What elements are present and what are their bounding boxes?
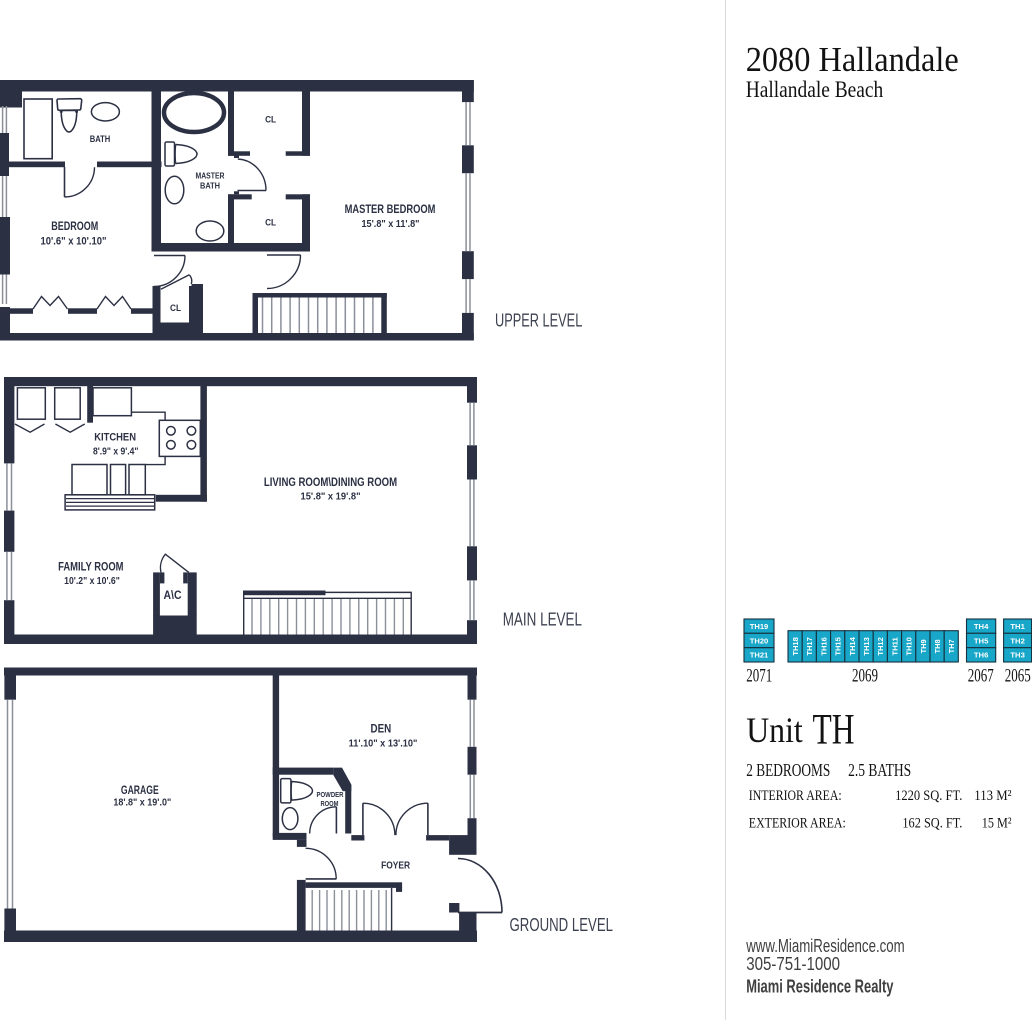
svg-text:Miami Residence Realty: Miami Residence Realty [746, 977, 893, 997]
svg-text:GROUND LEVEL: GROUND LEVEL [510, 915, 614, 935]
svg-text:A\C: A\C [164, 588, 182, 602]
svg-text:10'.2" x 10'.6": 10'.2" x 10'.6" [64, 575, 120, 587]
svg-text:MASTER BEDROOM: MASTER BEDROOM [345, 202, 436, 216]
svg-text:TH7: TH7 [947, 639, 956, 653]
svg-text:TH19: TH19 [750, 622, 769, 631]
svg-text:TH: TH [813, 706, 855, 753]
svg-text:LIVING ROOM\DINING ROOM: LIVING ROOM\DINING ROOM [264, 475, 397, 489]
svg-text:GARAGE: GARAGE [121, 785, 159, 797]
svg-text:TH8: TH8 [933, 639, 942, 653]
svg-text:MASTER: MASTER [196, 170, 225, 180]
svg-text:2071: 2071 [746, 666, 772, 687]
svg-text:TH12: TH12 [876, 637, 885, 656]
svg-text:15'.8" x 11'.8": 15'.8" x 11'.8" [362, 218, 420, 230]
svg-text:ROOM: ROOM [321, 799, 339, 808]
svg-text:TH2: TH2 [1010, 636, 1025, 645]
svg-text:TH15: TH15 [834, 637, 843, 656]
svg-text:15 M²: 15 M² [982, 816, 1012, 832]
svg-text:TH13: TH13 [862, 637, 871, 656]
svg-text:FOYER: FOYER [381, 860, 410, 872]
svg-text:BEDROOM: BEDROOM [51, 219, 98, 233]
svg-text:CL: CL [170, 303, 181, 313]
svg-text:305-751-1000: 305-751-1000 [746, 954, 840, 974]
svg-text:113 M²: 113 M² [974, 788, 1012, 804]
svg-text:TH18: TH18 [791, 637, 800, 656]
svg-text:TH3: TH3 [1010, 651, 1025, 660]
svg-text:TH20: TH20 [750, 636, 769, 645]
svg-text:TH14: TH14 [848, 636, 857, 655]
svg-text:BATH: BATH [200, 180, 220, 190]
svg-text:BATH: BATH [90, 134, 111, 145]
svg-text:TH21: TH21 [750, 651, 769, 660]
svg-text:TH16: TH16 [819, 637, 828, 656]
svg-text:Hallandale Beach: Hallandale Beach [746, 77, 884, 102]
svg-text:MAIN LEVEL: MAIN LEVEL [503, 609, 582, 629]
svg-text:EXTERIOR AREA:: EXTERIOR AREA: [749, 816, 846, 832]
svg-text:18'.8" x 19'.0": 18'.8" x 19'.0" [113, 798, 171, 809]
svg-text:UPPER LEVEL: UPPER LEVEL [495, 311, 582, 331]
svg-text:162 SQ. FT.: 162 SQ. FT. [902, 816, 962, 832]
svg-text:TH10: TH10 [905, 637, 914, 656]
svg-text:11'.10" x 13'.10": 11'.10" x 13'.10" [349, 739, 418, 750]
svg-text:TH6: TH6 [974, 651, 989, 660]
svg-text:TH17: TH17 [805, 637, 814, 656]
svg-text:2080 Hallandale: 2080 Hallandale [746, 40, 959, 79]
svg-text:TH9: TH9 [919, 639, 928, 653]
svg-text:2.5 BATHS: 2.5 BATHS [848, 760, 911, 780]
svg-text:DEN: DEN [371, 723, 392, 735]
svg-text:INTERIOR AREA:: INTERIOR AREA: [749, 788, 842, 804]
svg-text:CL: CL [265, 115, 276, 126]
svg-text:CL: CL [265, 218, 276, 229]
svg-text:TH5: TH5 [974, 636, 989, 645]
svg-text:2069: 2069 [852, 666, 878, 687]
svg-text:POWDER: POWDER [317, 790, 344, 799]
svg-text:15'.8" x 19'.8": 15'.8" x 19'.8" [301, 491, 361, 503]
svg-text:8'.9" x 9'.4": 8'.9" x 9'.4" [93, 447, 139, 458]
svg-text:FAMILY ROOM: FAMILY ROOM [58, 560, 123, 574]
svg-text:1220 SQ. FT.: 1220 SQ. FT. [895, 788, 962, 804]
svg-text:2 BEDROOMS: 2 BEDROOMS [746, 760, 830, 780]
svg-text:TH4: TH4 [974, 622, 989, 631]
svg-text:10'.6" x 10'.10": 10'.6" x 10'.10" [41, 236, 107, 248]
svg-text:KITCHEN: KITCHEN [94, 432, 136, 444]
svg-text:2067: 2067 [968, 666, 994, 687]
svg-text:Unit: Unit [746, 710, 803, 750]
svg-text:2065: 2065 [1005, 666, 1031, 687]
svg-text:TH1: TH1 [1010, 622, 1025, 631]
svg-text:TH11: TH11 [890, 637, 899, 656]
